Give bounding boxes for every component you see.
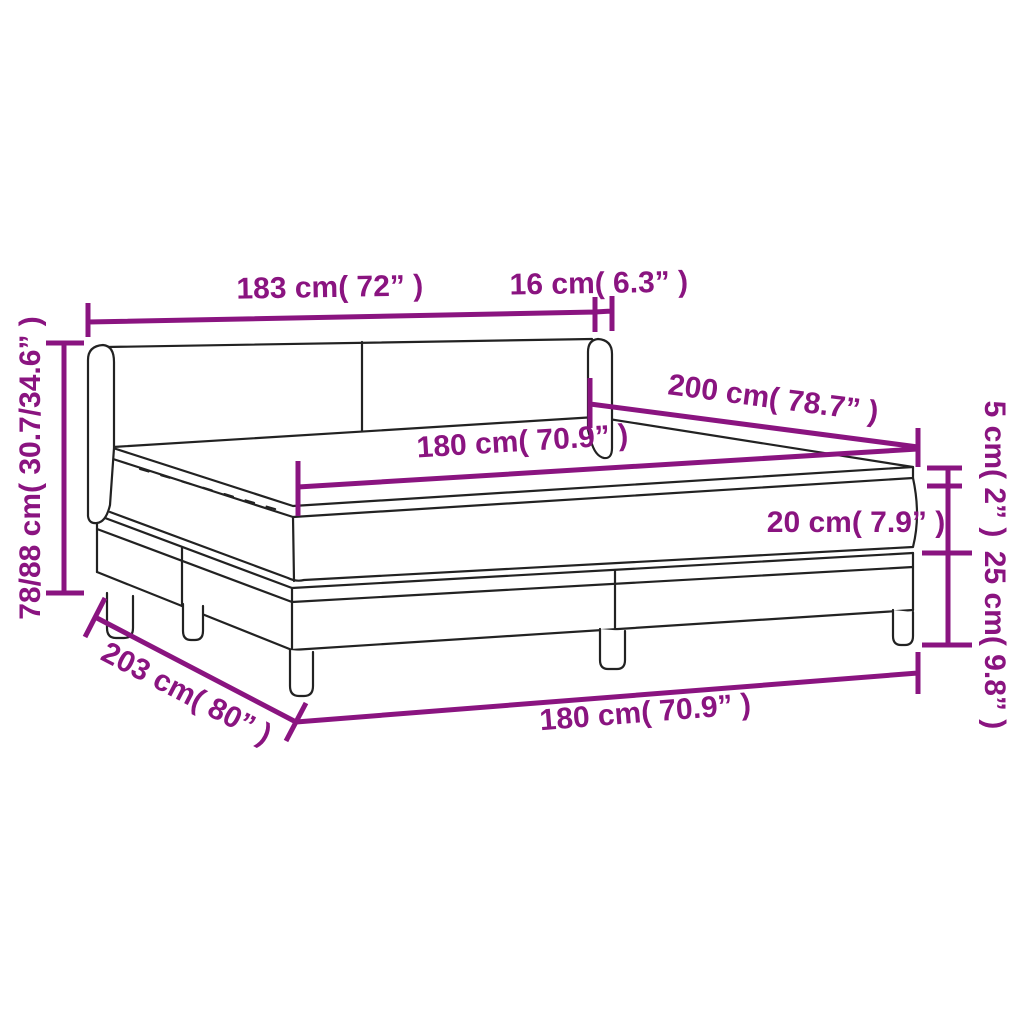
dim-line-total-height [46,343,84,593]
headboard-top-edge [107,339,592,347]
label-base-width: 180 cm( 70.9” ) [538,688,752,738]
bed-leg [183,604,203,640]
label-base-height: 25 cm( 9.8” ) [978,551,1011,729]
label-topper-height: 5 cm( 2” ) [978,401,1011,538]
topper-seam-dashes [140,469,285,512]
label-mattress-height: 20 cm( 7.9” ) [767,506,945,539]
bed-leg [290,650,313,696]
base-bottom-edge [97,572,913,650]
dim-line-wing-depth [595,296,612,331]
diagram-canvas: 183 cm( 72” ) 16 cm( 6.3” ) 78/88 cm( 30… [0,0,1024,1024]
headboard-left-wing [88,345,114,523]
bed-leg [893,610,913,645]
base-band [97,529,913,602]
label-wing-depth: 16 cm( 6.3” ) [509,265,688,301]
label-headboard-width: 183 cm( 72” ) [236,269,423,305]
bed-dimension-diagram: 183 cm( 72” ) 16 cm( 6.3” ) 78/88 cm( 30… [0,0,1024,1024]
bed-leg [600,629,625,669]
label-total-height: 78/88 cm( 30.7/34.6” ) [14,316,47,620]
label-base-length: 203 cm( 80” ) [96,636,277,752]
dim-line-right-stack [922,468,972,645]
